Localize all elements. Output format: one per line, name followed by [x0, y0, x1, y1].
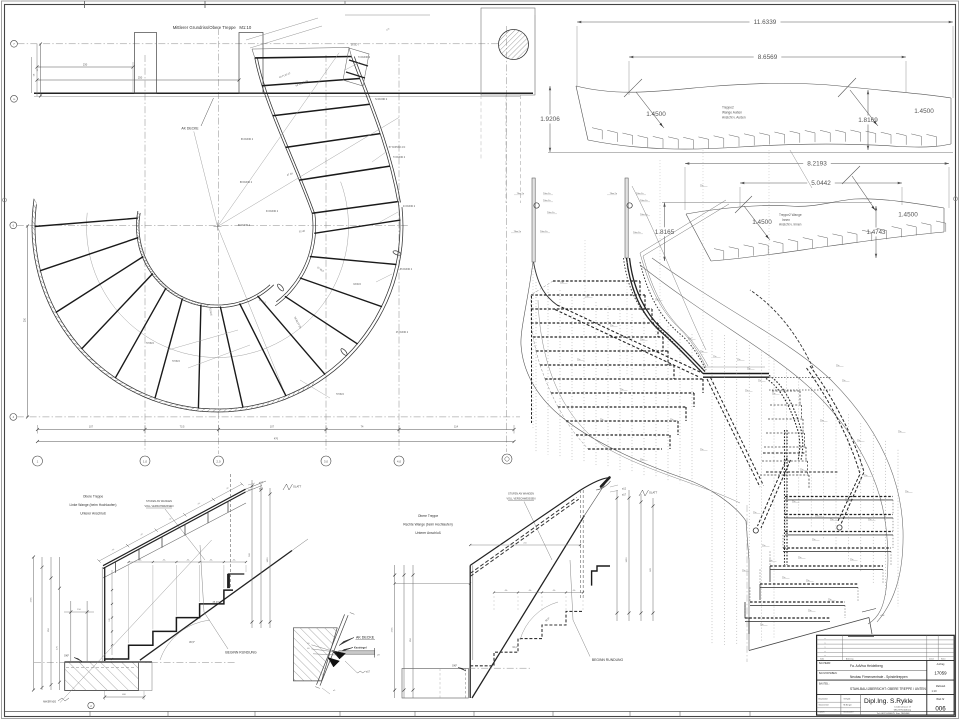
svg-text:+OK: +OK — [880, 615, 885, 617]
svg-text:73 RUND 2: 73 RUND 2 — [393, 156, 406, 159]
svg-text:66 RUND 2: 66 RUND 2 — [241, 138, 254, 141]
svg-text:-30-: -30- — [162, 560, 166, 562]
svg-text:BAUHERR:: BAUHERR: — [819, 662, 831, 665]
svg-text:33 RUND 2: 33 RUND 2 — [266, 210, 279, 213]
svg-text:VOLL VERSCHWEISSEN: VOLL VERSCHWEISSEN — [507, 497, 536, 500]
svg-text:17059: 17059 — [934, 671, 947, 676]
svg-text:114: 114 — [454, 426, 459, 429]
svg-text:STUFEN AN WANGEN: STUFEN AN WANGEN — [508, 493, 534, 496]
svg-text:34,2°: 34,2° — [512, 646, 518, 649]
svg-text:1,0: 1,0 — [143, 460, 148, 464]
svg-text:69123 Heidelberg: 69123 Heidelberg — [894, 708, 912, 711]
svg-text:S.Rykle: S.Rykle — [844, 698, 852, 700]
svg-text:OKF: OKF — [64, 655, 69, 658]
svg-text:Index: Index — [820, 659, 824, 661]
svg-text:250: 250 — [138, 75, 143, 79]
svg-text:a: a — [825, 642, 826, 644]
svg-text:h5: h5 — [307, 643, 309, 645]
svg-text:Innen: Innen — [782, 218, 790, 222]
svg-text:VOLL VERSCHWEISSEN: VOLL VERSCHWEISSEN — [145, 505, 174, 508]
svg-text:Obere Treppe: Obere Treppe — [83, 495, 104, 499]
svg-text:57 BL5: 57 BL5 — [146, 342, 154, 345]
svg-text:Blatt Nr: Blatt Nr — [937, 698, 945, 701]
svg-text:-30-: -30- — [209, 560, 213, 562]
svg-text:ANKER M20: ANKER M20 — [43, 701, 57, 704]
svg-text:Tel. 06221-830675 Fax: 786534: Tel. 06221-830675 Fax: 7865348 — [877, 713, 910, 715]
svg-text:107: 107 — [270, 426, 275, 429]
svg-text:3,0: 3,0 — [324, 460, 329, 464]
svg-text:1:10: 1:10 — [931, 689, 937, 693]
svg-text:73.5: 73.5 — [180, 426, 185, 429]
svg-text:Datum: Datum — [929, 658, 935, 661]
svg-text:a: a — [825, 655, 826, 657]
svg-text:1.4500: 1.4500 — [646, 111, 666, 118]
svg-text:1.8165: 1.8165 — [655, 229, 675, 236]
svg-text:1.4500: 1.4500 — [914, 108, 934, 115]
svg-text:STAHLBAU-ÜBERSICHT: OBERE TREP: STAHLBAU-ÜBERSICHT: OBERE TREPPE / UNTEN — [850, 687, 927, 691]
svg-text:AK DECKE: AK DECKE — [356, 636, 375, 640]
svg-text:72-RUND 2: 72-RUND 2 — [375, 98, 388, 101]
svg-text:-30-: -30- — [572, 590, 576, 592]
svg-text:Dipl.Ing. S.Rykle: Dipl.Ing. S.Rykle — [864, 698, 913, 705]
svg-text:Auftrag: Auftrag — [937, 663, 945, 666]
svg-text:AK DECKE: AK DECKE — [181, 127, 199, 131]
svg-text:-30-: -30- — [528, 590, 532, 592]
svg-text:Maßstab: Maßstab — [936, 685, 946, 688]
svg-text:Neubau Firmenzentrale - Spinde: Neubau Firmenzentrale - Spindeltreppen — [850, 675, 908, 679]
svg-text:a: a — [825, 638, 826, 640]
svg-text:5.0442: 5.0442 — [811, 180, 831, 187]
svg-text:8.2193: 8.2193 — [807, 161, 827, 168]
svg-text:68 RUND 2: 68 RUND 2 — [238, 224, 251, 227]
svg-text:Obere Treppe: Obere Treppe — [418, 514, 439, 518]
svg-text:GLATT: GLATT — [293, 484, 302, 488]
svg-text:57 BL5: 57 BL5 — [336, 393, 344, 396]
svg-text:Änderung: Änderung — [846, 658, 853, 661]
svg-text:006: 006 — [935, 706, 946, 713]
svg-text:OKF: OKF — [452, 665, 457, 668]
svg-text:57 BL5: 57 BL5 — [172, 360, 180, 363]
svg-text:Fa. AdViva Heidelberg: Fa. AdViva Heidelberg — [850, 664, 883, 668]
svg-text:Ansicht v. Innen: Ansicht v. Innen — [779, 223, 802, 227]
svg-text:2,0: 2,0 — [216, 460, 221, 464]
svg-text:Kastriegel: Kastriegel — [354, 646, 367, 650]
svg-text:Lindenstrasse 17: Lindenstrasse 17 — [894, 705, 911, 708]
svg-text:57 KOHW2 4 N: 57 KOHW2 4 N — [389, 146, 406, 149]
svg-text:Name: Name — [941, 659, 946, 661]
svg-text:BEGINN RUNDUNG: BEGINN RUNDUNG — [225, 651, 257, 655]
svg-text:1450: 1450 — [267, 557, 269, 563]
svg-text:-30-: -30- — [186, 560, 190, 562]
svg-text:-30-: -30- — [138, 560, 142, 562]
svg-text:1735: 1735 — [31, 597, 33, 603]
svg-text:Ansicht v. Außen: Ansicht v. Außen — [722, 116, 746, 120]
svg-text:1.9206: 1.9206 — [540, 116, 560, 123]
svg-text:476: 476 — [274, 438, 279, 441]
svg-text:BEGINN RUNDUNG: BEGINN RUNDUNG — [592, 658, 624, 662]
svg-text:Mittlerer Grundriss/Obere Trep: Mittlerer Grundriss/Obere Treppe M1:10 — [173, 25, 252, 30]
svg-text:a: a — [825, 651, 826, 653]
svg-text:Wange Außen: Wange Außen — [722, 111, 742, 115]
svg-text:11.6339: 11.6339 — [754, 19, 777, 26]
svg-text:230: 230 — [83, 62, 88, 66]
svg-text:GLATT: GLATT — [649, 491, 658, 495]
svg-text:Datum: Datum — [819, 710, 825, 713]
svg-text:33 RL5: 33 RL5 — [353, 283, 361, 286]
svg-text:250: 250 — [24, 317, 27, 322]
svg-text:1.4500: 1.4500 — [898, 212, 918, 219]
svg-text:Unterer Anschluß: Unterer Anschluß — [80, 512, 105, 516]
svg-text:8.6569: 8.6569 — [758, 54, 778, 61]
svg-text:Unterer Anschluß: Unterer Anschluß — [415, 531, 440, 535]
svg-text:1.4743: 1.4743 — [867, 229, 886, 236]
svg-text:45 RUND 2: 45 RUND 2 — [396, 331, 409, 334]
svg-text:a: a — [825, 647, 826, 649]
svg-text:1735: 1735 — [392, 627, 394, 633]
svg-text:Bearbeitet: Bearbeitet — [819, 697, 829, 700]
svg-text:BAUTEIL :: BAUTEIL : — [819, 683, 830, 686]
svg-text:88 RUND 2: 88 RUND 2 — [240, 181, 253, 184]
svg-text:-30-: -30- — [232, 560, 236, 562]
svg-text:Treppe2 Wange: Treppe2 Wange — [779, 213, 802, 217]
svg-text:-30-: -30- — [504, 590, 508, 592]
svg-text:4,0: 4,0 — [397, 460, 402, 464]
svg-text:Gezeichnet: Gezeichnet — [819, 704, 830, 707]
svg-text:107: 107 — [89, 426, 94, 429]
svg-text:STUFEN AN WANGEN: STUFEN AN WANGEN — [146, 500, 172, 503]
svg-text:36 SL-T: 36 SL-T — [351, 44, 360, 47]
svg-text:06.04.2019: 06.04.2019 — [844, 711, 855, 713]
svg-text:1450: 1450 — [626, 557, 628, 563]
svg-text:M.Berger: M.Berger — [844, 705, 853, 707]
svg-text:b5: b5 — [307, 648, 309, 650]
svg-text:Linke Wange (beim Hochlaufen): Linke Wange (beim Hochlaufen) — [70, 503, 117, 507]
svg-text:36,5°: 36,5° — [189, 640, 195, 644]
svg-text:Treppe2: Treppe2 — [722, 106, 734, 110]
svg-text:43 RUND 2: 43 RUND 2 — [403, 205, 416, 208]
svg-text:Rechte Wange (beim Hochlaufen): Rechte Wange (beim Hochlaufen) — [403, 523, 453, 527]
svg-text:35,07°: 35,07° — [213, 601, 220, 604]
svg-text:1.4500: 1.4500 — [752, 219, 772, 226]
svg-text:65 RUND 2: 65 RUND 2 — [400, 268, 413, 271]
svg-text:-30-: -30- — [552, 590, 556, 592]
svg-text:73 RUND 2: 73 RUND 2 — [358, 56, 371, 59]
svg-text:BAUVORHABEN:: BAUVORHABEN: — [819, 672, 838, 675]
